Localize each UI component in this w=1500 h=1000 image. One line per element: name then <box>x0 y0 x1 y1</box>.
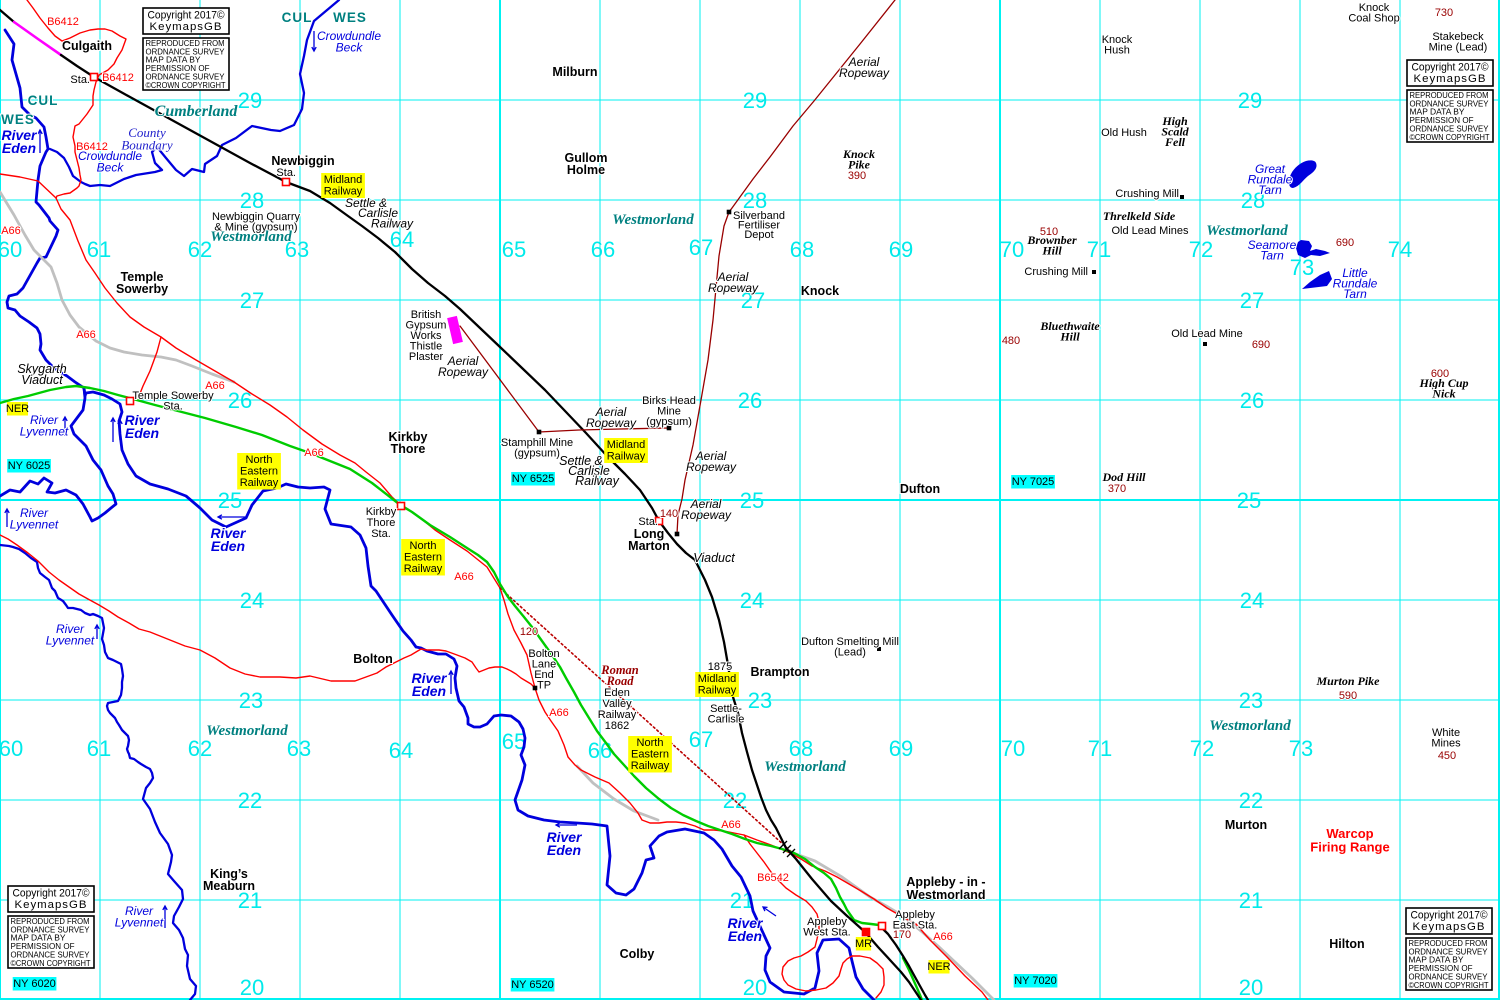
svg-text:TP: TP <box>537 680 551 692</box>
svg-text:20: 20 <box>743 975 767 1000</box>
svg-text:73: 73 <box>1290 255 1314 280</box>
svg-text:1862: 1862 <box>605 720 629 732</box>
svg-text:25: 25 <box>1237 488 1261 513</box>
svg-text:72: 72 <box>1190 736 1214 761</box>
svg-text:62: 62 <box>188 736 212 761</box>
svg-text:29: 29 <box>1238 88 1262 113</box>
svg-text:Eden: Eden <box>728 928 762 944</box>
svg-text:61: 61 <box>87 237 111 262</box>
svg-text:Railway: Railway <box>698 685 737 697</box>
svg-text:25: 25 <box>740 488 764 513</box>
svg-text:27: 27 <box>1240 288 1264 313</box>
svg-text:Westmorland: Westmorland <box>210 229 292 245</box>
svg-text:65: 65 <box>502 237 526 262</box>
svg-text:©CROWN COPYRIGHT: ©CROWN COPYRIGHT <box>146 80 227 90</box>
svg-text:140: 140 <box>660 508 678 520</box>
svg-text:28: 28 <box>240 188 264 213</box>
svg-text:72: 72 <box>1189 237 1213 262</box>
svg-text:Dod Hill: Dod Hill <box>1101 470 1146 484</box>
svg-text:Railway: Railway <box>631 760 670 772</box>
svg-text:67: 67 <box>689 235 713 260</box>
svg-text:370: 370 <box>1108 483 1126 495</box>
svg-text:64: 64 <box>390 227 414 252</box>
svg-text:©CROWN COPYRIGHT: ©CROWN COPYRIGHT <box>1409 980 1490 990</box>
svg-text:Thore: Thore <box>391 442 426 456</box>
svg-text:North: North <box>410 540 437 552</box>
svg-text:Lyvennet: Lyvennet <box>10 518 59 532</box>
svg-text:Coal Shop: Coal Shop <box>1348 13 1399 25</box>
svg-text:B6412: B6412 <box>102 72 134 84</box>
svg-text:Eden: Eden <box>2 140 36 156</box>
svg-text:Westmorland: Westmorland <box>612 212 694 228</box>
svg-text:26: 26 <box>1240 388 1264 413</box>
svg-text:Copyright 2017©: Copyright 2017© <box>148 10 226 22</box>
svg-text:Carlisle: Carlisle <box>708 714 745 726</box>
svg-text:74: 74 <box>1388 237 1412 262</box>
svg-text:25: 25 <box>218 488 242 513</box>
svg-text:Viaduct: Viaduct <box>693 551 735 565</box>
svg-text:62: 62 <box>188 237 212 262</box>
svg-text:20: 20 <box>1239 975 1263 1000</box>
svg-text:73: 73 <box>1289 736 1313 761</box>
svg-text:690: 690 <box>1252 339 1270 351</box>
svg-text:Eastern: Eastern <box>240 466 278 478</box>
svg-text:Mine (Lead): Mine (Lead) <box>1429 42 1488 54</box>
svg-text:120: 120 <box>520 626 538 638</box>
svg-text:Cumberland: Cumberland <box>155 103 239 120</box>
svg-text:North: North <box>246 454 273 466</box>
svg-text:450: 450 <box>1438 750 1456 762</box>
svg-text:Sta.: Sta. <box>70 74 90 86</box>
svg-text:69: 69 <box>889 237 913 262</box>
svg-text:NY 7020: NY 7020 <box>1014 975 1057 987</box>
svg-text:©CROWN COPYRIGHT: ©CROWN COPYRIGHT <box>1410 132 1491 142</box>
svg-text:Ropeway: Ropeway <box>438 365 489 379</box>
svg-text:Sta.: Sta. <box>638 516 658 528</box>
svg-text:71: 71 <box>1088 736 1112 761</box>
svg-text:Copyright 2017©: Copyright 2017© <box>1412 62 1490 74</box>
svg-text:A66: A66 <box>304 447 324 459</box>
svg-text:69: 69 <box>889 736 913 761</box>
svg-text:NY 7025: NY 7025 <box>1012 476 1055 488</box>
svg-text:27: 27 <box>240 288 264 313</box>
svg-text:Ropeway: Ropeway <box>839 66 890 80</box>
svg-text:23: 23 <box>748 688 772 713</box>
svg-text:26: 26 <box>738 388 762 413</box>
svg-text:West Sta.: West Sta. <box>803 927 850 939</box>
svg-text:Milburn: Milburn <box>552 65 597 79</box>
svg-text:Lyvennet: Lyvennet <box>115 916 164 930</box>
svg-text:Sowerby: Sowerby <box>116 282 168 296</box>
svg-text:60: 60 <box>0 736 23 761</box>
svg-text:21: 21 <box>1239 888 1263 913</box>
svg-text:Railway: Railway <box>371 217 414 231</box>
svg-text:NY 6025: NY 6025 <box>8 460 51 472</box>
svg-text:Knock: Knock <box>801 284 839 298</box>
svg-text:CUL: CUL <box>282 10 313 25</box>
svg-text:Murton Pike: Murton Pike <box>1315 674 1380 688</box>
svg-text:Brampton: Brampton <box>750 665 809 679</box>
svg-text:67: 67 <box>689 727 713 752</box>
svg-text:Tarn: Tarn <box>1343 287 1367 301</box>
svg-text:Ropeway: Ropeway <box>686 460 737 474</box>
svg-text:66: 66 <box>588 738 612 763</box>
svg-text:Old Lead Mine: Old Lead Mine <box>1171 328 1243 340</box>
svg-text:68: 68 <box>789 736 813 761</box>
svg-text:A66: A66 <box>76 329 96 341</box>
svg-text:71: 71 <box>1087 237 1111 262</box>
svg-text:Sta.: Sta. <box>163 401 183 413</box>
svg-text:Westmorland: Westmorland <box>764 759 846 775</box>
svg-text:Tarn: Tarn <box>1260 249 1284 263</box>
svg-text:70: 70 <box>1000 237 1024 262</box>
svg-text:29: 29 <box>743 88 767 113</box>
svg-text:63: 63 <box>287 736 311 761</box>
svg-text:CUL: CUL <box>28 93 59 108</box>
svg-text:1875: 1875 <box>708 661 732 673</box>
svg-text:Old Lead Mines: Old Lead Mines <box>1111 225 1189 237</box>
svg-text:Railway: Railway <box>575 474 620 488</box>
svg-text:A66: A66 <box>933 931 953 943</box>
svg-text:22: 22 <box>1239 788 1263 813</box>
svg-text:A66: A66 <box>549 707 569 719</box>
svg-text:A66: A66 <box>1 225 21 237</box>
svg-text:Westmorland: Westmorland <box>206 723 288 739</box>
svg-text:KeymapsGB: KeymapsGB <box>150 21 223 33</box>
svg-text:510: 510 <box>1040 226 1058 238</box>
svg-text:KeymapsGB: KeymapsGB <box>15 899 88 911</box>
svg-text:Copyright 2017©: Copyright 2017© <box>1411 910 1489 922</box>
svg-text:A66: A66 <box>205 380 225 392</box>
svg-text:Viaduct: Viaduct <box>21 373 63 387</box>
svg-text:Beck: Beck <box>97 161 125 175</box>
svg-text:NER: NER <box>6 403 29 415</box>
svg-text:Road: Road <box>605 674 634 688</box>
svg-text:29: 29 <box>238 88 262 113</box>
svg-text:(gypsum): (gypsum) <box>646 416 692 428</box>
svg-text:Ropeway: Ropeway <box>681 508 732 522</box>
svg-text:Ropeway: Ropeway <box>586 416 637 430</box>
svg-text:Eden: Eden <box>211 538 245 554</box>
svg-text:Sta.: Sta. <box>371 528 391 540</box>
svg-text:Westmorland: Westmorland <box>907 888 986 902</box>
svg-text:Mines: Mines <box>1431 738 1461 750</box>
svg-text:Crushing Mill: Crushing Mill <box>1115 188 1179 200</box>
svg-text:Fell: Fell <box>1164 135 1186 149</box>
svg-text:Railway: Railway <box>607 451 646 463</box>
svg-text:Nick: Nick <box>1431 387 1455 401</box>
svg-text:590: 590 <box>1339 690 1357 702</box>
svg-text:Copyright 2017©: Copyright 2017© <box>13 888 91 900</box>
svg-text:Colby: Colby <box>620 947 655 961</box>
svg-text:Old Hush: Old Hush <box>1101 127 1147 139</box>
svg-text:Eden: Eden <box>125 425 159 441</box>
svg-text:480: 480 <box>1002 335 1020 347</box>
svg-text:23: 23 <box>239 688 263 713</box>
svg-text:Culgaith: Culgaith <box>62 39 112 53</box>
svg-text:22: 22 <box>238 788 262 813</box>
svg-text:Firing Range: Firing Range <box>1310 840 1389 855</box>
svg-text:66: 66 <box>591 237 615 262</box>
svg-text:Midland: Midland <box>324 174 363 186</box>
svg-text:Hill: Hill <box>1059 330 1080 344</box>
svg-text:390: 390 <box>848 170 866 182</box>
svg-text:68: 68 <box>790 237 814 262</box>
svg-text:Railway: Railway <box>404 563 443 575</box>
svg-text:WES: WES <box>333 10 367 25</box>
svg-text:Crushing Mill: Crushing Mill <box>1024 266 1088 278</box>
svg-text:A66: A66 <box>721 819 741 831</box>
svg-text:70: 70 <box>1001 736 1025 761</box>
svg-text:64: 64 <box>389 738 413 763</box>
svg-text:Westmorland: Westmorland <box>1206 223 1288 239</box>
svg-text:Midland: Midland <box>607 439 646 451</box>
svg-text:KeymapsGB: KeymapsGB <box>1414 73 1487 85</box>
svg-text:North: North <box>637 737 664 749</box>
svg-text:Murton: Murton <box>1225 818 1267 832</box>
svg-text:NER: NER <box>927 961 950 973</box>
svg-text:NY 6020: NY 6020 <box>13 978 56 990</box>
svg-text:(gypsum): (gypsum) <box>514 448 560 460</box>
svg-text:Threlkeld Side: Threlkeld Side <box>1103 209 1176 223</box>
svg-text:60: 60 <box>0 237 22 262</box>
svg-text:24: 24 <box>740 588 764 613</box>
svg-text:Westmorland: Westmorland <box>1209 718 1291 734</box>
svg-text:©CROWN COPYRIGHT: ©CROWN COPYRIGHT <box>11 958 92 968</box>
svg-text:24: 24 <box>1240 588 1264 613</box>
svg-text:20: 20 <box>240 975 264 1000</box>
svg-text:730: 730 <box>1435 7 1453 19</box>
svg-text:Marton: Marton <box>628 539 670 553</box>
svg-text:Railway: Railway <box>240 477 279 489</box>
svg-text:B6412: B6412 <box>76 141 108 153</box>
svg-text:23: 23 <box>1239 688 1263 713</box>
svg-text:KeymapsGB: KeymapsGB <box>1413 921 1486 933</box>
svg-text:61: 61 <box>87 736 111 761</box>
svg-text:B6542: B6542 <box>757 872 789 884</box>
svg-text:NY 6525: NY 6525 <box>512 473 555 485</box>
svg-text:A66: A66 <box>454 571 474 583</box>
svg-text:Eastern: Eastern <box>404 552 442 564</box>
svg-text:Appleby - in -: Appleby - in - <box>906 875 985 889</box>
svg-text:Newbiggin: Newbiggin <box>271 154 334 168</box>
svg-text:Boundary: Boundary <box>121 138 173 153</box>
svg-text:Eden: Eden <box>412 683 446 699</box>
svg-text:Lyvennet: Lyvennet <box>20 425 69 439</box>
svg-text:690: 690 <box>1336 237 1354 249</box>
svg-text:Hilton: Hilton <box>1329 937 1364 951</box>
svg-text:(Lead): (Lead) <box>834 647 866 659</box>
svg-text:NY 6520: NY 6520 <box>511 979 554 991</box>
svg-text:24: 24 <box>240 588 264 613</box>
svg-text:Hill: Hill <box>1041 244 1062 258</box>
svg-text:Midland: Midland <box>698 673 737 685</box>
svg-text:Eastern: Eastern <box>631 749 669 761</box>
svg-text:Ropeway: Ropeway <box>708 281 759 295</box>
svg-text:Beck: Beck <box>336 41 364 55</box>
svg-text:WES: WES <box>1 112 35 127</box>
svg-text:Sta.: Sta. <box>276 167 296 179</box>
svg-text:Tarn: Tarn <box>1258 183 1282 197</box>
svg-text:Hush: Hush <box>1104 45 1130 57</box>
svg-text:600: 600 <box>1431 368 1449 380</box>
svg-text:B6412: B6412 <box>47 16 79 28</box>
svg-text:Eden: Eden <box>547 842 581 858</box>
svg-text:MR: MR <box>855 938 872 950</box>
svg-text:Holme: Holme <box>567 163 605 177</box>
svg-text:Bolton: Bolton <box>353 652 393 666</box>
svg-text:Meaburn: Meaburn <box>203 879 255 893</box>
svg-text:Dufton: Dufton <box>900 482 940 496</box>
svg-text:170: 170 <box>893 929 911 941</box>
svg-text:Depot: Depot <box>744 229 773 241</box>
svg-text:Lyvennet: Lyvennet <box>46 634 95 648</box>
svg-text:Plaster: Plaster <box>409 351 444 363</box>
